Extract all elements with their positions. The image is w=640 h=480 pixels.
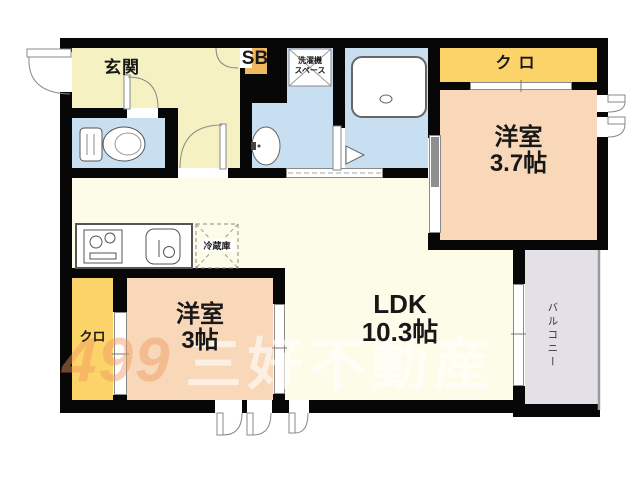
wall-closetleft-divider bbox=[113, 278, 127, 312]
label-bedroom37-name: 洋室 bbox=[440, 125, 597, 151]
wall-bedroom3-divider-top bbox=[273, 278, 285, 304]
label-shoebox: SB bbox=[238, 49, 272, 70]
sliding-door-closet-top bbox=[470, 82, 572, 90]
wall-left-lower bbox=[60, 92, 72, 412]
label-closet-top: クロ bbox=[440, 55, 597, 72]
label-laundry-space: 洗濯機 スペース bbox=[289, 56, 331, 75]
wall-closet-top-left bbox=[440, 82, 470, 90]
wall-bedroom37-bottom bbox=[428, 240, 597, 250]
label-ldk-size: 10.3帖 bbox=[328, 318, 472, 346]
wall-bath-right bbox=[428, 38, 440, 138]
sliding-door-bedroom3 bbox=[274, 304, 285, 394]
room-balcony bbox=[525, 250, 598, 407]
wall-right bbox=[597, 38, 608, 250]
label-genkan: 玄関 bbox=[76, 59, 168, 77]
label-ldk: LDK 10.3帖 bbox=[328, 290, 472, 346]
label-bedroom37-size: 3.7帖 bbox=[440, 151, 597, 177]
opening-toilet-door bbox=[127, 108, 158, 118]
wall-balcony-left-bottom bbox=[513, 386, 525, 408]
entrance-door-icon bbox=[27, 49, 71, 94]
wall-closetleft-divider-bottom bbox=[113, 395, 127, 405]
label-bedroom-3: 洋室 3帖 bbox=[127, 302, 273, 354]
label-bedroom3-size: 3帖 bbox=[127, 328, 273, 354]
label-ldk-name: LDK bbox=[328, 290, 472, 318]
window-gap-right-1 bbox=[597, 95, 608, 112]
sliding-door-closet-left bbox=[114, 312, 127, 395]
label-bedroom-3-7: 洋室 3.7帖 bbox=[440, 125, 597, 177]
wall-bedroom3-divider-bottom bbox=[273, 394, 285, 404]
sliding-panel-closed bbox=[431, 137, 439, 187]
wall-closet-top-right bbox=[572, 82, 597, 90]
label-laundry-line2: スペース bbox=[289, 66, 331, 76]
wall-wash-bath-divider bbox=[333, 38, 345, 128]
casement-window-right-2 bbox=[608, 117, 625, 137]
casement-window-bottom-2 bbox=[247, 413, 271, 435]
label-laundry-line1: 洗濯機 bbox=[289, 56, 331, 66]
wall-left-upper bbox=[60, 38, 72, 52]
bathroom-door-leaf bbox=[333, 126, 341, 170]
opening-ldk-hall-door bbox=[178, 168, 228, 178]
label-closet-left: クロ bbox=[72, 330, 113, 344]
casement-window-bottom-3 bbox=[289, 413, 308, 433]
room-toilet bbox=[72, 118, 165, 168]
wall-balcony-left-top bbox=[513, 250, 525, 284]
sliding-glassdoor-balcony bbox=[513, 284, 524, 386]
label-bedroom3-name: 洋室 bbox=[127, 302, 273, 328]
wall-bottom-main bbox=[60, 400, 513, 413]
wall-bottom-balcony bbox=[513, 404, 600, 417]
label-balcony: バルコニー bbox=[546, 278, 557, 393]
room-bathroom bbox=[345, 48, 428, 168]
casement-window-right-1 bbox=[608, 95, 625, 112]
window-gap-bottom-1 bbox=[215, 400, 242, 413]
window-gap-bottom-2 bbox=[247, 400, 272, 413]
sliding-door-washroom bbox=[286, 168, 383, 178]
window-gap-right-2 bbox=[597, 117, 608, 137]
label-refrigerator: 冷蔵庫 bbox=[199, 239, 235, 252]
casement-window-bottom-1 bbox=[217, 413, 242, 435]
window-gap-bottom-3 bbox=[289, 400, 309, 413]
wall-kitchen-rooms bbox=[60, 268, 285, 278]
floorplan: 499 三好不動産 玄関 SB 洗濯機 スペース クロ 洋室 3.7帖 冷蔵庫 … bbox=[0, 0, 640, 480]
